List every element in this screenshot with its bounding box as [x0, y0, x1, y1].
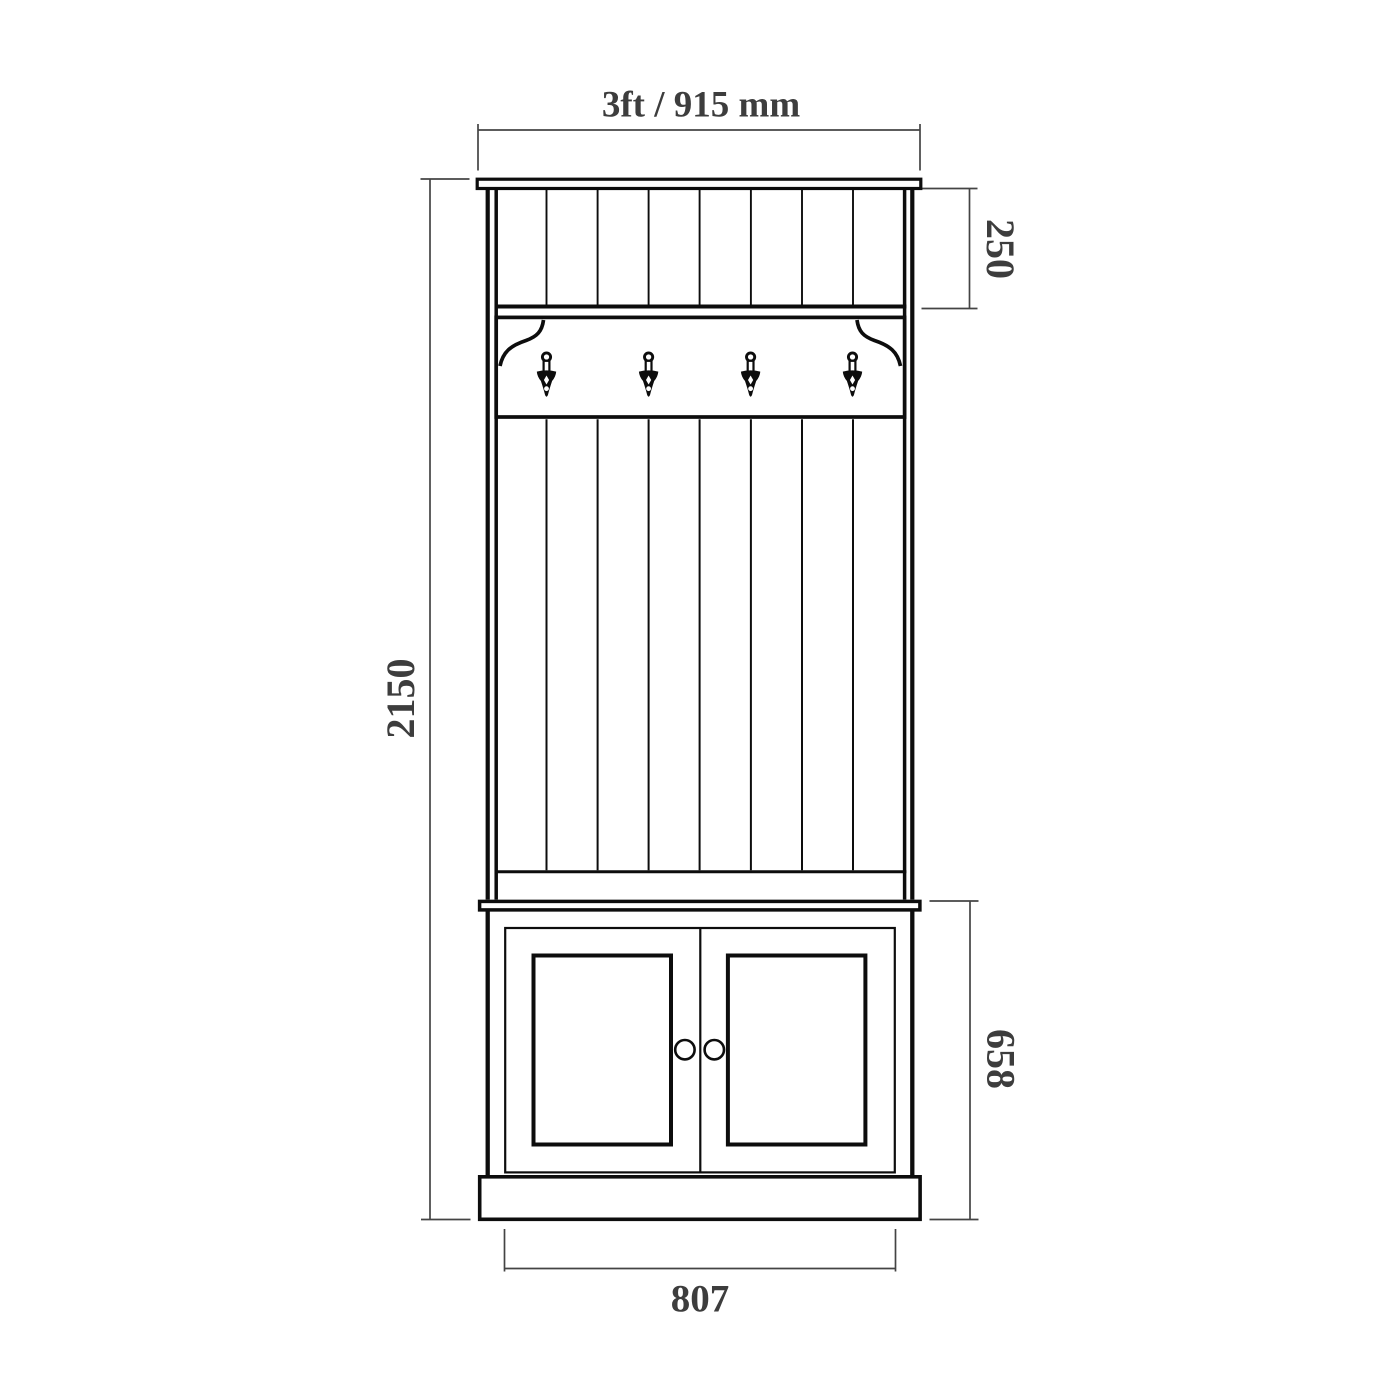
- svg-text:250: 250: [978, 219, 1023, 279]
- svg-text:3ft / 915 mm: 3ft / 915 mm: [602, 85, 800, 126]
- svg-text:2150: 2150: [378, 659, 423, 739]
- svg-text:658: 658: [979, 1029, 1024, 1089]
- svg-text:807: 807: [671, 1278, 730, 1321]
